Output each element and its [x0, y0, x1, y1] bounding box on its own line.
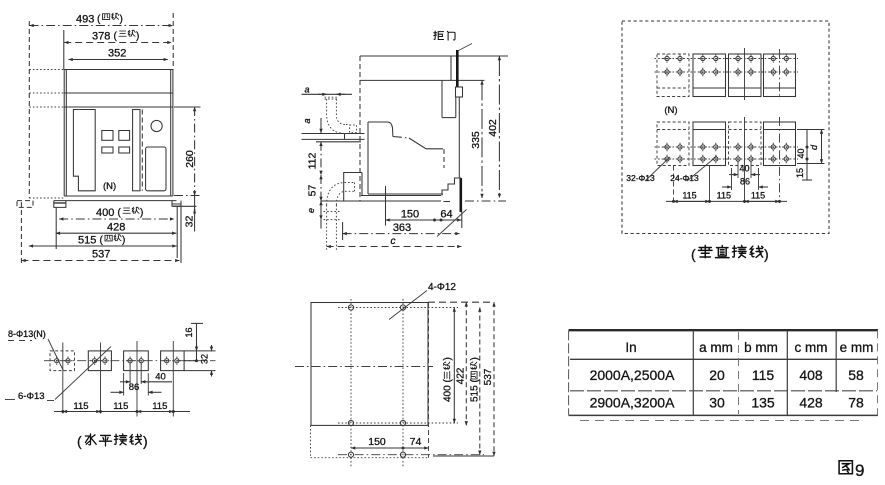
svg-text:40: 40 — [796, 148, 806, 158]
svg-text:400: 400 — [96, 207, 114, 219]
svg-text:74: 74 — [410, 436, 422, 448]
svg-text:493: 493 — [76, 14, 94, 26]
svg-text:(: ( — [77, 433, 82, 449]
svg-text:86: 86 — [740, 177, 750, 187]
svg-text:32: 32 — [199, 354, 209, 364]
svg-text:20: 20 — [709, 367, 725, 383]
svg-text:40: 40 — [155, 372, 166, 383]
svg-text:115: 115 — [682, 191, 696, 201]
svg-text:422: 422 — [456, 367, 467, 384]
svg-text:64: 64 — [440, 209, 452, 221]
svg-text:): ) — [764, 246, 769, 262]
svg-text:86: 86 — [129, 382, 140, 393]
svg-text:537: 537 — [92, 249, 110, 261]
svg-text:9: 9 — [855, 461, 864, 480]
svg-text:30: 30 — [709, 395, 725, 411]
svg-text:537: 537 — [483, 368, 494, 385]
svg-text:In: In — [625, 340, 636, 355]
svg-text:115: 115 — [751, 191, 765, 201]
svg-text:d: d — [809, 144, 819, 150]
svg-text:428: 428 — [107, 222, 125, 234]
svg-text:a: a — [305, 85, 310, 95]
svg-text:515 (: 515 ( — [470, 379, 481, 402]
svg-text:15: 15 — [795, 168, 805, 178]
svg-text:400 (: 400 ( — [443, 379, 454, 402]
svg-text:(: ( — [118, 208, 122, 219]
svg-text:115: 115 — [152, 401, 167, 412]
svg-text:402: 402 — [487, 119, 499, 137]
svg-text:115: 115 — [73, 401, 88, 412]
svg-text:150: 150 — [401, 209, 419, 221]
svg-text:6-Φ13: 6-Φ13 — [18, 391, 45, 402]
svg-text:352: 352 — [108, 48, 126, 60]
svg-text:(: ( — [691, 246, 696, 262]
svg-text:78: 78 — [848, 395, 864, 411]
svg-text:150: 150 — [368, 436, 386, 448]
svg-text:135: 135 — [751, 395, 775, 411]
svg-text:363: 363 — [393, 222, 411, 234]
svg-text:4-Φ12: 4-Φ12 — [428, 282, 456, 293]
svg-text:): ) — [120, 14, 123, 25]
svg-text:57: 57 — [306, 185, 318, 197]
svg-text:378: 378 — [92, 31, 110, 43]
svg-text:260: 260 — [184, 150, 196, 168]
svg-text:): ) — [443, 357, 454, 360]
svg-text:): ) — [140, 208, 143, 219]
svg-text:(N): (N) — [664, 105, 677, 116]
svg-text:335: 335 — [470, 131, 482, 149]
svg-text:(: ( — [97, 14, 101, 25]
svg-text:b mm: b mm — [744, 340, 778, 355]
svg-text:): ) — [136, 31, 139, 42]
svg-text:8-Φ13(N): 8-Φ13(N) — [8, 329, 46, 339]
svg-text:32-Φ13: 32-Φ13 — [626, 173, 655, 183]
svg-text:115: 115 — [717, 191, 731, 201]
svg-text:515: 515 — [78, 235, 96, 247]
svg-text:2000A,2500A: 2000A,2500A — [590, 367, 676, 383]
svg-text:e mm: e mm — [840, 340, 874, 355]
svg-text:115: 115 — [113, 401, 128, 412]
svg-text:a mm: a mm — [699, 340, 733, 355]
svg-text:428: 428 — [799, 395, 823, 411]
svg-text:2900A,3200A: 2900A,3200A — [590, 395, 676, 411]
svg-text:c: c — [391, 236, 396, 247]
svg-text:c mm: c mm — [795, 340, 828, 355]
svg-text:112: 112 — [306, 152, 318, 169]
svg-text:(: ( — [114, 31, 118, 42]
svg-text:): ) — [470, 357, 481, 360]
svg-text:): ) — [122, 235, 125, 246]
svg-text:(: ( — [100, 235, 104, 246]
svg-text:16: 16 — [184, 327, 194, 337]
svg-text:e: e — [306, 208, 316, 213]
svg-text:40: 40 — [739, 164, 749, 174]
svg-text:a: a — [302, 118, 312, 123]
svg-text:115: 115 — [752, 367, 775, 383]
svg-text:58: 58 — [848, 367, 864, 383]
svg-text:32: 32 — [183, 216, 195, 228]
svg-text:(N): (N) — [103, 181, 116, 192]
svg-text:408: 408 — [799, 367, 823, 383]
svg-text:): ) — [143, 433, 148, 449]
